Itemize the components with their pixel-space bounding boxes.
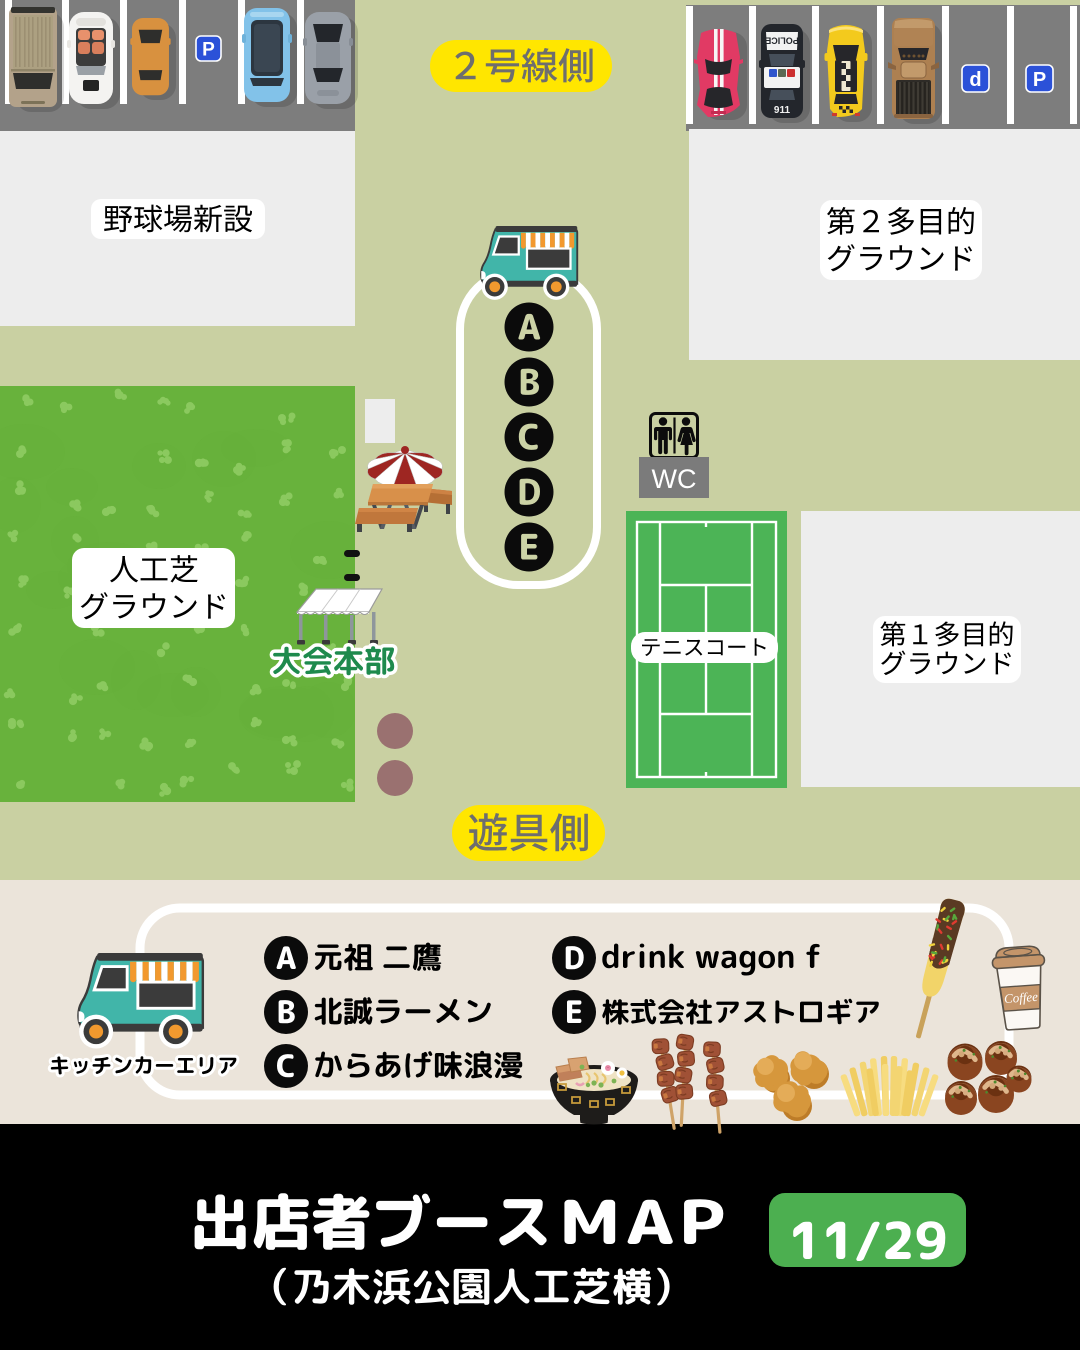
svg-text:P: P: [202, 40, 215, 61]
svg-text:d: d: [969, 69, 981, 91]
svg-text:911: 911: [774, 105, 791, 116]
svg-text:Coffee: Coffee: [1003, 989, 1038, 1006]
svg-text:POLICE: POLICE: [765, 36, 799, 46]
svg-text:WC: WC: [652, 464, 697, 494]
svg-text:P: P: [1033, 69, 1046, 91]
